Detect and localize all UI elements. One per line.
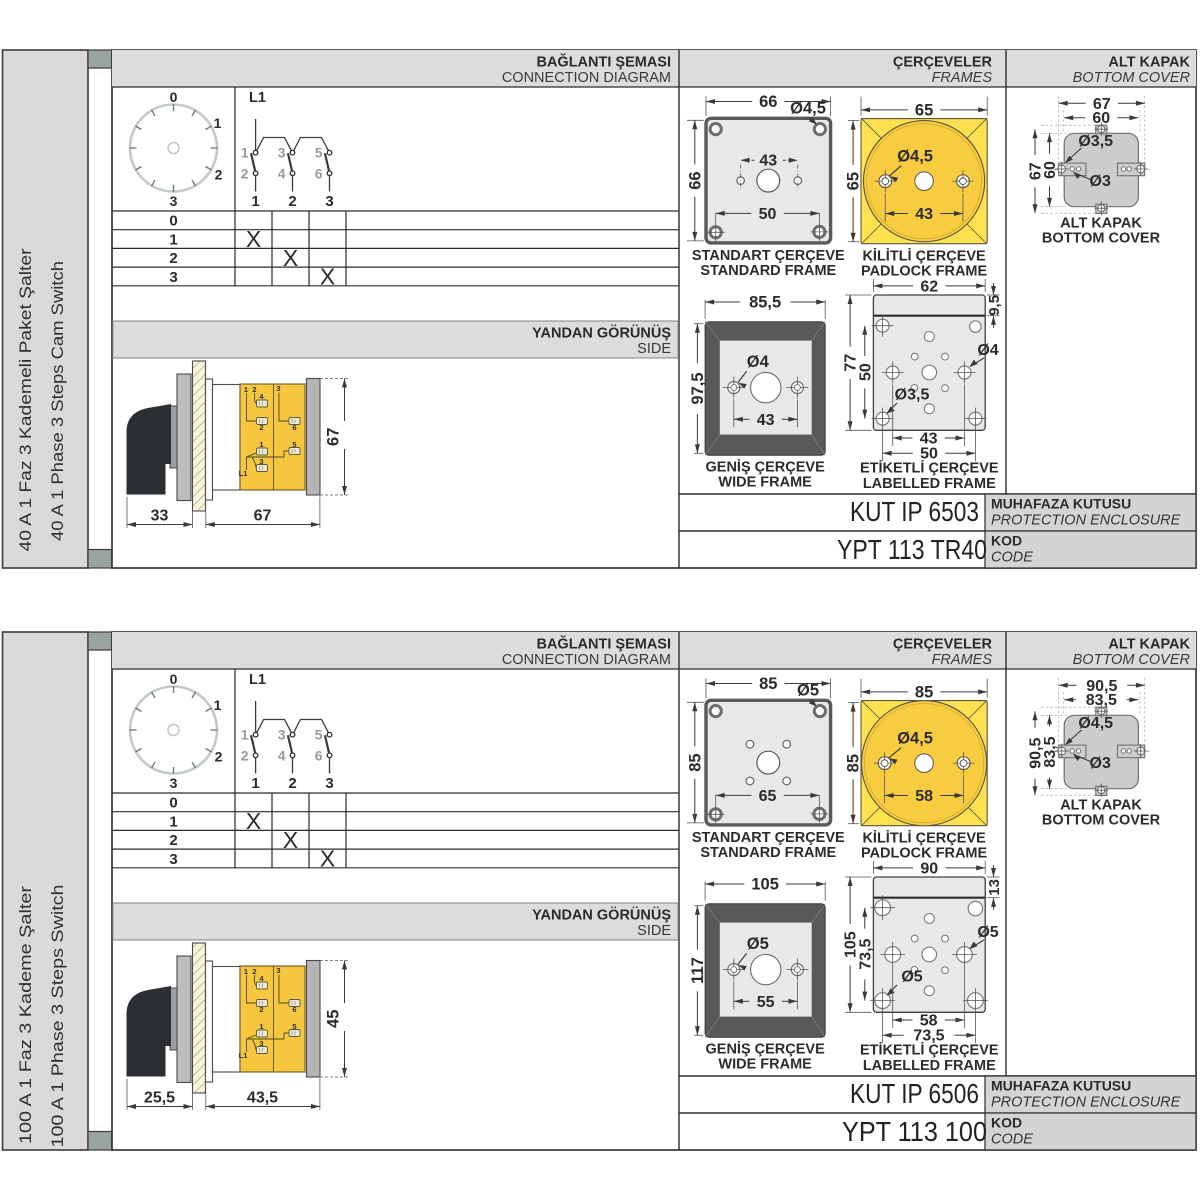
svg-text:Ø4,5: Ø4,5 bbox=[897, 730, 933, 748]
svg-text:KOD: KOD bbox=[991, 533, 1022, 549]
svg-text:BOTTOM COVER: BOTTOM COVER bbox=[1073, 652, 1191, 668]
svg-text:0: 0 bbox=[170, 671, 178, 687]
svg-text:YANDAN GÖRÜNÜŞ: YANDAN GÖRÜNÜŞ bbox=[532, 907, 671, 924]
svg-text:BOTTOM COVER: BOTTOM COVER bbox=[1042, 813, 1161, 829]
svg-text:X: X bbox=[246, 808, 261, 834]
svg-text:33: 33 bbox=[151, 508, 169, 525]
svg-text:CONNECTION DIAGRAM: CONNECTION DIAGRAM bbox=[502, 652, 671, 668]
svg-text:KİLİTLİ ÇERÇEVE: KİLİTLİ ÇERÇEVE bbox=[862, 248, 986, 265]
svg-text:40 A 1 Faz 3 Kademeli Paket Şa: 40 A 1 Faz 3 Kademeli Paket Şalter bbox=[17, 248, 35, 552]
svg-text:STANDART ÇERÇEVE: STANDART ÇERÇEVE bbox=[692, 248, 845, 264]
svg-text:GENİŞ ÇERÇEVE: GENİŞ ÇERÇEVE bbox=[706, 458, 826, 475]
svg-text:117: 117 bbox=[689, 957, 707, 984]
svg-text:ALT KAPAK: ALT KAPAK bbox=[1108, 55, 1190, 71]
svg-text:1: 1 bbox=[241, 145, 249, 161]
svg-text:3: 3 bbox=[278, 727, 286, 743]
svg-text:ALT KAPAK: ALT KAPAK bbox=[1060, 216, 1142, 232]
svg-text:LABELLED FRAME: LABELLED FRAME bbox=[863, 476, 996, 492]
svg-text:CODE: CODE bbox=[991, 550, 1033, 566]
svg-text:9,5: 9,5 bbox=[986, 295, 1003, 316]
svg-text:4: 4 bbox=[278, 165, 286, 181]
svg-text:Ø3,5: Ø3,5 bbox=[895, 387, 930, 404]
svg-text:ALT KAPAK: ALT KAPAK bbox=[1060, 798, 1142, 814]
svg-text:2: 2 bbox=[259, 423, 263, 432]
svg-text:KOD: KOD bbox=[991, 1115, 1022, 1131]
svg-text:3: 3 bbox=[170, 193, 178, 209]
svg-text:L1: L1 bbox=[249, 672, 266, 688]
svg-text:5: 5 bbox=[292, 440, 296, 449]
svg-text:2: 2 bbox=[252, 385, 256, 394]
svg-text:4: 4 bbox=[278, 747, 286, 763]
svg-text:66: 66 bbox=[686, 171, 704, 189]
svg-text:62: 62 bbox=[920, 278, 938, 295]
svg-text:BAĞLANTI ŞEMASI: BAĞLANTI ŞEMASI bbox=[536, 53, 671, 71]
svg-text:5: 5 bbox=[292, 1022, 296, 1031]
svg-text:2: 2 bbox=[288, 775, 296, 792]
svg-text:2: 2 bbox=[252, 967, 256, 976]
svg-text:1: 1 bbox=[169, 231, 177, 248]
svg-text:KUT IP 6506: KUT IP 6506 bbox=[850, 1078, 979, 1109]
svg-text:66: 66 bbox=[759, 93, 777, 111]
svg-text:3: 3 bbox=[276, 966, 280, 975]
svg-text:43,5: 43,5 bbox=[247, 1090, 278, 1107]
svg-text:3: 3 bbox=[170, 775, 178, 791]
svg-text:X: X bbox=[320, 846, 335, 872]
svg-text:85: 85 bbox=[759, 675, 777, 693]
svg-text:Ø5: Ø5 bbox=[977, 924, 998, 941]
svg-text:GENİŞ ÇERÇEVE: GENİŞ ÇERÇEVE bbox=[706, 1040, 826, 1057]
svg-text:CODE: CODE bbox=[991, 1132, 1033, 1148]
svg-text:1: 1 bbox=[251, 775, 259, 792]
svg-text:2: 2 bbox=[288, 193, 296, 210]
svg-text:2: 2 bbox=[169, 832, 177, 849]
svg-text:6: 6 bbox=[292, 423, 296, 432]
svg-text:5: 5 bbox=[315, 145, 323, 161]
svg-text:FRAMES: FRAMES bbox=[932, 652, 993, 668]
svg-text:1: 1 bbox=[259, 1022, 263, 1031]
svg-text:WIDE FRAME: WIDE FRAME bbox=[718, 1056, 812, 1072]
svg-text:ALT KAPAK: ALT KAPAK bbox=[1108, 637, 1190, 653]
svg-text:1: 1 bbox=[241, 727, 249, 743]
svg-text:Ø3,5: Ø3,5 bbox=[1078, 133, 1113, 150]
svg-text:6: 6 bbox=[315, 747, 323, 763]
svg-text:PADLOCK FRAME: PADLOCK FRAME bbox=[861, 264, 988, 280]
svg-text:X: X bbox=[246, 226, 261, 252]
svg-text:83,5: 83,5 bbox=[1042, 736, 1059, 767]
svg-text:PADLOCK FRAME: PADLOCK FRAME bbox=[861, 846, 988, 862]
svg-text:1: 1 bbox=[244, 385, 248, 394]
svg-text:ETİKETLİ ÇERÇEVE: ETİKETLİ ÇERÇEVE bbox=[860, 460, 999, 477]
svg-text:65: 65 bbox=[915, 101, 933, 119]
svg-text:2: 2 bbox=[259, 1005, 263, 1014]
svg-text:ÇERÇEVELER: ÇERÇEVELER bbox=[893, 637, 993, 653]
svg-text:85: 85 bbox=[915, 683, 933, 701]
svg-text:67: 67 bbox=[325, 428, 343, 446]
svg-text:ETİKETLİ ÇERÇEVE: ETİKETLİ ÇERÇEVE bbox=[860, 1042, 999, 1059]
svg-text:YPT 113 TR40: YPT 113 TR40 bbox=[837, 534, 987, 565]
svg-text:40 A 1 Phase 3 Steps Cam Switc: 40 A 1 Phase 3 Steps Cam Switch bbox=[49, 261, 67, 541]
svg-text:3: 3 bbox=[169, 851, 177, 868]
svg-text:90: 90 bbox=[920, 860, 938, 877]
svg-text:PROTECTION ENCLOSURE: PROTECTION ENCLOSURE bbox=[991, 513, 1181, 529]
svg-text:0: 0 bbox=[170, 89, 178, 105]
svg-text:0: 0 bbox=[169, 213, 177, 230]
svg-text:1: 1 bbox=[259, 440, 263, 449]
svg-text:3: 3 bbox=[169, 269, 177, 286]
svg-text:CONNECTION DIAGRAM: CONNECTION DIAGRAM bbox=[502, 70, 671, 86]
svg-text:Ø5: Ø5 bbox=[901, 969, 922, 986]
svg-text:Ø4,5: Ø4,5 bbox=[790, 99, 826, 117]
svg-text:85: 85 bbox=[845, 754, 863, 772]
svg-text:105: 105 bbox=[751, 876, 779, 894]
svg-text:KİLİTLİ ÇERÇEVE: KİLİTLİ ÇERÇEVE bbox=[862, 830, 986, 847]
svg-text:3: 3 bbox=[259, 1039, 263, 1048]
svg-text:MUHAFAZA KUTUSU: MUHAFAZA KUTUSU bbox=[991, 496, 1131, 512]
svg-text:58: 58 bbox=[915, 788, 933, 805]
svg-text:5: 5 bbox=[315, 727, 323, 743]
svg-text:3: 3 bbox=[276, 384, 280, 393]
svg-text:X: X bbox=[283, 245, 298, 271]
svg-text:85: 85 bbox=[686, 753, 704, 771]
svg-text:ÇERÇEVELER: ÇERÇEVELER bbox=[893, 55, 993, 71]
svg-text:73,5: 73,5 bbox=[857, 938, 874, 969]
svg-text:BOTTOM COVER: BOTTOM COVER bbox=[1042, 231, 1161, 247]
svg-text:PROTECTION ENCLOSURE: PROTECTION ENCLOSURE bbox=[991, 1095, 1181, 1111]
svg-text:60: 60 bbox=[1092, 110, 1110, 127]
svg-text:1: 1 bbox=[251, 193, 259, 210]
svg-text:Ø4,5: Ø4,5 bbox=[1078, 715, 1113, 732]
svg-text:1: 1 bbox=[214, 697, 222, 713]
svg-text:YANDAN GÖRÜNÜŞ: YANDAN GÖRÜNÜŞ bbox=[532, 325, 671, 342]
svg-text:Ø3: Ø3 bbox=[1090, 755, 1111, 772]
svg-text:1: 1 bbox=[244, 967, 248, 976]
svg-text:SIDE: SIDE bbox=[637, 923, 671, 939]
svg-text:Ø4: Ø4 bbox=[977, 342, 998, 359]
svg-text:L1: L1 bbox=[239, 1051, 248, 1060]
svg-text:97,5: 97,5 bbox=[689, 372, 707, 404]
svg-text:100 A 1 Phase 3 Steps Switch: 100 A 1 Phase 3 Steps Switch bbox=[49, 885, 67, 1148]
svg-text:KUT IP 6503: KUT IP 6503 bbox=[850, 496, 979, 527]
svg-text:X: X bbox=[283, 827, 298, 853]
svg-text:BOTTOM COVER: BOTTOM COVER bbox=[1073, 70, 1191, 86]
svg-text:2: 2 bbox=[241, 165, 249, 181]
svg-text:Ø3: Ø3 bbox=[1090, 173, 1111, 190]
svg-text:2: 2 bbox=[215, 167, 223, 183]
svg-text:FRAMES: FRAMES bbox=[932, 70, 993, 86]
svg-text:Ø5: Ø5 bbox=[747, 935, 769, 953]
svg-text:X: X bbox=[320, 264, 335, 290]
svg-text:STANDART ÇERÇEVE: STANDART ÇERÇEVE bbox=[692, 830, 845, 846]
svg-text:2: 2 bbox=[241, 747, 249, 763]
svg-text:2: 2 bbox=[169, 250, 177, 267]
svg-text:55: 55 bbox=[757, 994, 775, 1011]
svg-text:L1: L1 bbox=[239, 469, 248, 478]
svg-text:3: 3 bbox=[325, 775, 333, 792]
svg-text:3: 3 bbox=[278, 145, 286, 161]
svg-text:SIDE: SIDE bbox=[637, 341, 671, 357]
svg-text:43: 43 bbox=[915, 206, 933, 223]
svg-text:83,5: 83,5 bbox=[1086, 692, 1117, 709]
svg-text:50: 50 bbox=[759, 206, 777, 223]
svg-text:2: 2 bbox=[215, 749, 223, 765]
svg-text:STANDARD FRAME: STANDARD FRAME bbox=[700, 845, 836, 861]
svg-text:Ø4: Ø4 bbox=[747, 353, 770, 371]
svg-text:3: 3 bbox=[259, 457, 263, 466]
svg-text:3: 3 bbox=[325, 193, 333, 210]
svg-text:6: 6 bbox=[292, 1005, 296, 1014]
svg-text:1: 1 bbox=[169, 813, 177, 830]
svg-text:13: 13 bbox=[986, 879, 1003, 896]
svg-text:45: 45 bbox=[325, 1010, 343, 1028]
svg-text:1: 1 bbox=[214, 115, 222, 131]
svg-text:85,5: 85,5 bbox=[749, 294, 781, 312]
svg-text:STANDARD FRAME: STANDARD FRAME bbox=[700, 263, 836, 279]
svg-text:50: 50 bbox=[857, 363, 874, 381]
svg-text:60: 60 bbox=[1042, 161, 1059, 179]
svg-text:LABELLED FRAME: LABELLED FRAME bbox=[863, 1058, 996, 1074]
svg-text:43: 43 bbox=[757, 412, 775, 429]
svg-text:Ø4,5: Ø4,5 bbox=[897, 148, 933, 166]
svg-text:WIDE FRAME: WIDE FRAME bbox=[718, 474, 812, 490]
svg-text:43: 43 bbox=[759, 152, 777, 169]
svg-text:BAĞLANTI ŞEMASI: BAĞLANTI ŞEMASI bbox=[536, 635, 671, 653]
svg-text:YPT 113 100: YPT 113 100 bbox=[842, 1116, 987, 1147]
svg-text:65: 65 bbox=[759, 788, 777, 805]
svg-text:0: 0 bbox=[169, 795, 177, 812]
svg-text:100 A 1 Faz 3 Kademe Şalter: 100 A 1 Faz 3 Kademe Şalter bbox=[17, 885, 35, 1144]
svg-text:L1: L1 bbox=[249, 90, 266, 106]
svg-text:Ø5: Ø5 bbox=[797, 681, 819, 699]
svg-text:67: 67 bbox=[254, 508, 272, 525]
svg-text:25,5: 25,5 bbox=[144, 1090, 175, 1107]
svg-text:MUHAFAZA KUTUSU: MUHAFAZA KUTUSU bbox=[991, 1078, 1131, 1094]
svg-text:6: 6 bbox=[315, 165, 323, 181]
svg-text:65: 65 bbox=[845, 172, 863, 190]
